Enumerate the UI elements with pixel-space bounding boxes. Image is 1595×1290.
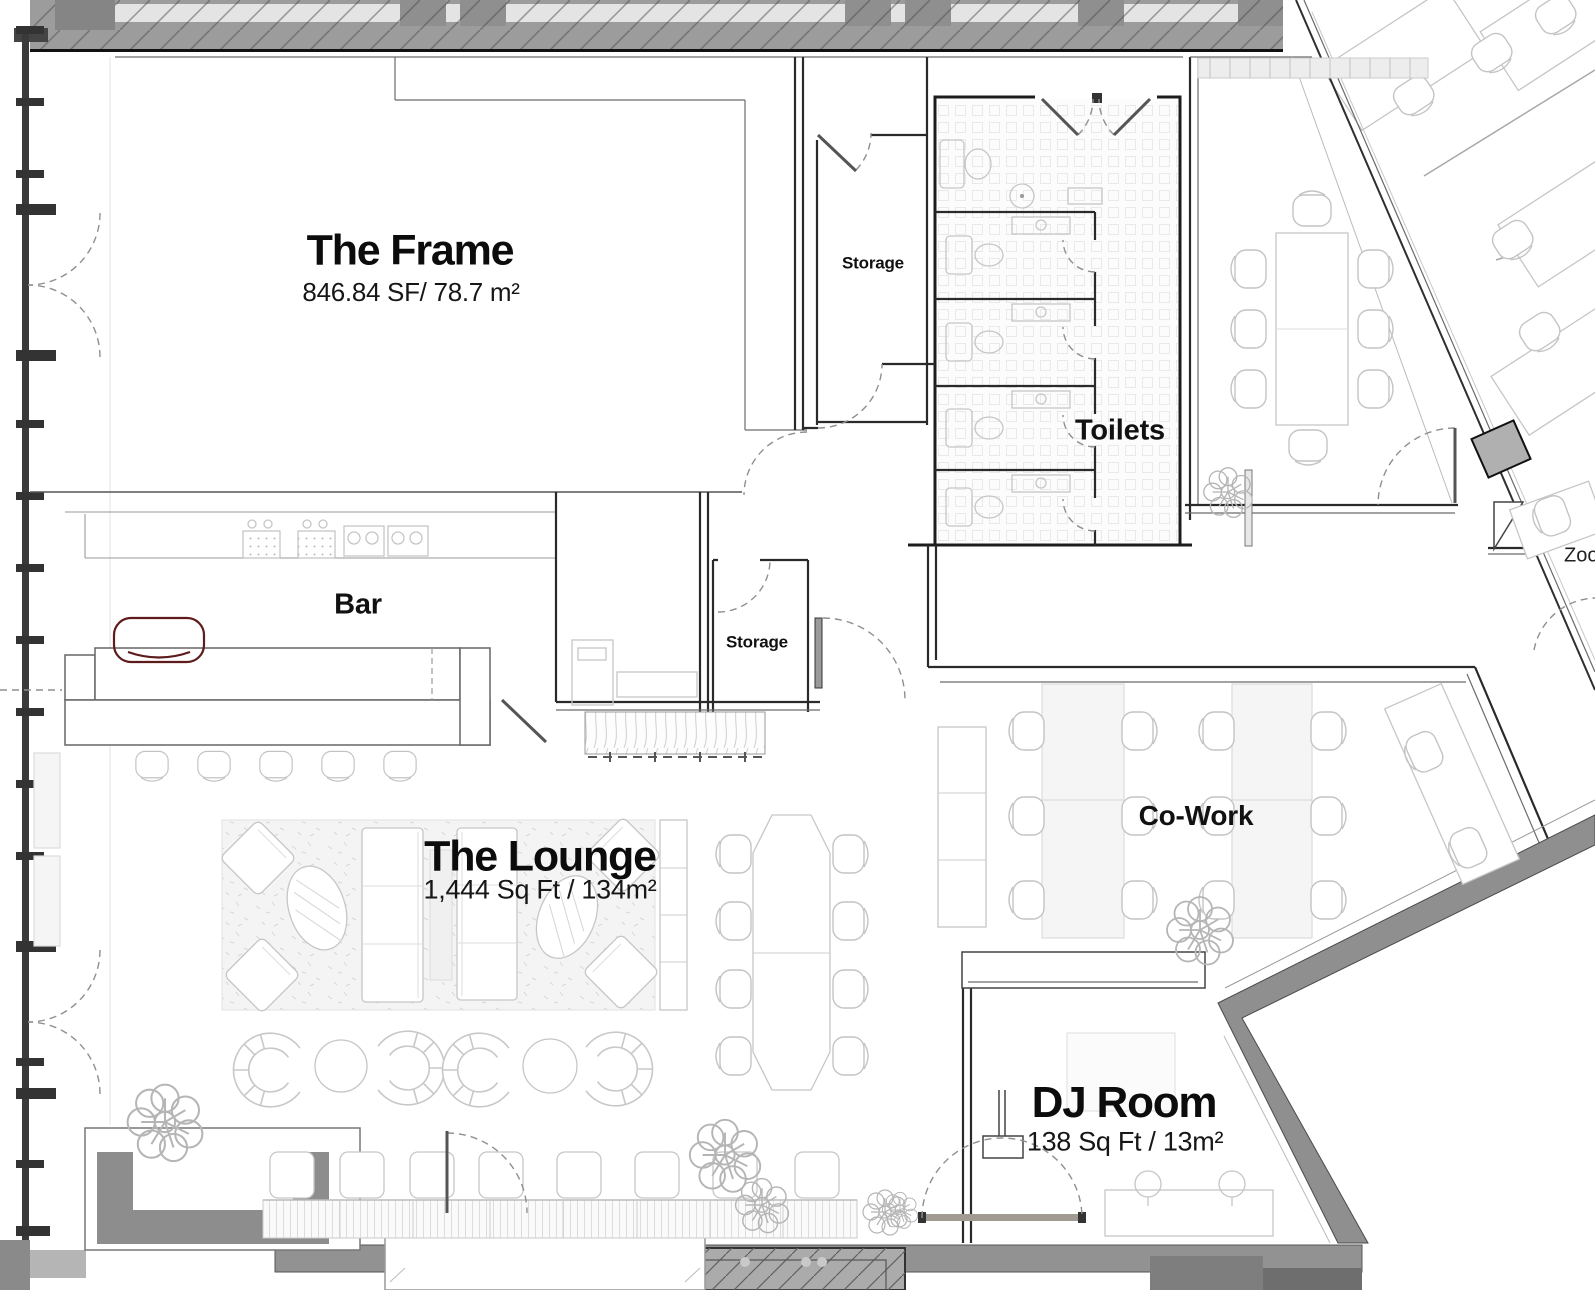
stool-icon [136,751,168,781]
chair-icon [1009,881,1044,919]
room-label-the-lounge: The Lounge [424,836,656,879]
room-area-the-frame: 846.84 SF/ 78.7 m² [302,279,519,305]
chair-icon [1231,370,1266,408]
chair-icon [1311,712,1346,750]
room-label-toilets: Toilets [1075,417,1165,446]
stool-icon [384,751,416,781]
chair-icon [1231,250,1266,288]
chair-icon [833,1037,868,1075]
room-label-zoom: Zoo [1564,545,1595,568]
chair-icon [1289,430,1327,465]
top-exterior-wall [14,0,1283,51]
floor-plan-page: The Frame 846.84 SF/ 78.7 m² Bar Storage… [0,0,1595,1290]
chair-icon [716,970,751,1008]
banquette-tables [270,1152,839,1198]
chair-icon [1009,797,1044,835]
chair-icon [1122,712,1157,750]
left-window-wall [16,26,110,1242]
chair-icon [1358,250,1393,288]
room-label-storage-mid: Storage [726,634,788,651]
chair-icon [1122,881,1157,919]
chair-icon [1293,191,1331,226]
chair-icon [716,835,751,873]
room-label-storage-top: Storage [842,255,904,272]
room-label-cowork: Co-Work [1139,802,1254,830]
chair-icon [1311,797,1346,835]
chair-icon [1231,310,1266,348]
chair-icon [833,970,868,1008]
chair-icon [1199,712,1234,750]
room-label-the-frame: The Frame [307,230,514,273]
room-label-bar: Bar [334,591,382,620]
chair-icon [833,835,868,873]
chair-icon [1311,881,1346,919]
tub-chair-icon [233,1033,300,1107]
tub-chair-icon [378,1031,445,1105]
chair-icon [1358,370,1393,408]
shaft-block [1471,420,1530,477]
chair-icon [716,902,751,940]
tub-chair-icon [586,1032,653,1106]
radiator [34,856,60,946]
stool-icon [198,751,230,781]
stool-icon [260,751,292,781]
room-label-dj-room: DJ Room [1032,1081,1217,1125]
floor-plan [0,0,1595,1290]
chair-icon [1358,310,1393,348]
chair-icon [716,1037,751,1075]
radiator [34,753,60,848]
room-area-dj-room: 138 Sq Ft / 13m² [1027,1129,1223,1156]
stool-icon [322,751,354,781]
bar-equipment-icons [243,520,428,558]
room-area-the-lounge: 1,444 Sq Ft / 134m² [424,877,657,904]
chair-icon [1009,712,1044,750]
chair-icon [833,902,868,940]
tub-chair-icon [442,1033,509,1107]
